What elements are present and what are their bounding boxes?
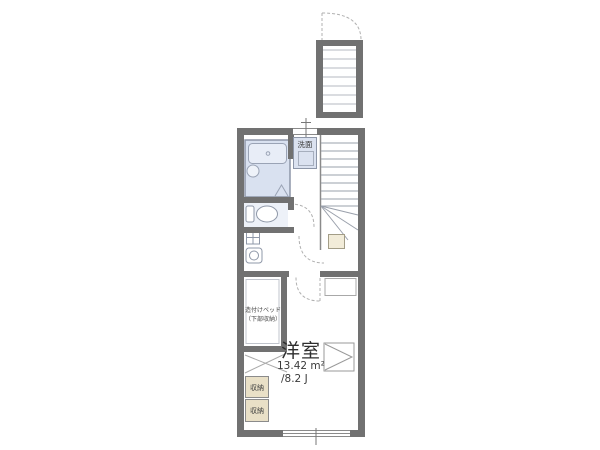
wall-main-bottom-right bbox=[350, 430, 365, 437]
storage-label-top: 収納 bbox=[245, 383, 269, 393]
wall-main-top-left bbox=[237, 128, 293, 135]
entry-door-swing-icon bbox=[322, 13, 361, 40]
storage-label-bottom: 収納 bbox=[245, 406, 269, 416]
floor-plan: 洗面 造付けベッド （下部収納） 洋室 13.42 m² /8.2 J 収納 収… bbox=[0, 0, 600, 450]
toilet-icon bbox=[246, 206, 278, 222]
washing-machine-icon bbox=[246, 248, 262, 263]
unit-bath bbox=[245, 140, 290, 197]
wall-toilet-right-stub bbox=[288, 197, 294, 210]
built-in-bed-label-line1: 造付けベッド bbox=[243, 305, 283, 314]
wall-toilet-bottom bbox=[241, 227, 294, 233]
bathtub-icon bbox=[249, 144, 287, 164]
interior-stairs bbox=[321, 135, 359, 250]
closet-counter bbox=[325, 279, 356, 296]
wall-tower-bottom bbox=[316, 112, 363, 118]
washstand-bowl-icon bbox=[298, 151, 314, 166]
side-window-box-icon bbox=[324, 343, 354, 371]
washstand-label: 洗面 bbox=[293, 139, 317, 150]
wall-bath-toilet bbox=[241, 197, 294, 203]
built-in-bed-label-line2: （下部収納） bbox=[243, 314, 283, 323]
bath-basin-icon bbox=[247, 165, 259, 177]
room-name: 洋室 bbox=[281, 336, 321, 363]
bedroom-door-swing-icon bbox=[296, 278, 320, 302]
top-window-icon bbox=[293, 118, 317, 137]
wall-main-left bbox=[237, 128, 244, 437]
wall-tower-right bbox=[356, 40, 363, 118]
room-tatami: /8.2 J bbox=[281, 373, 308, 385]
wall-tower-left bbox=[316, 40, 323, 118]
wall-main-right bbox=[358, 128, 365, 437]
bottom-window-icon bbox=[283, 428, 350, 445]
wall-main-bottom-left bbox=[237, 430, 283, 437]
under-stair-storage-box bbox=[328, 234, 345, 249]
room-area: 13.42 m² bbox=[277, 360, 325, 372]
upper-stairs-treads bbox=[323, 50, 356, 104]
wall-washroom-bedroom-right bbox=[320, 271, 365, 277]
